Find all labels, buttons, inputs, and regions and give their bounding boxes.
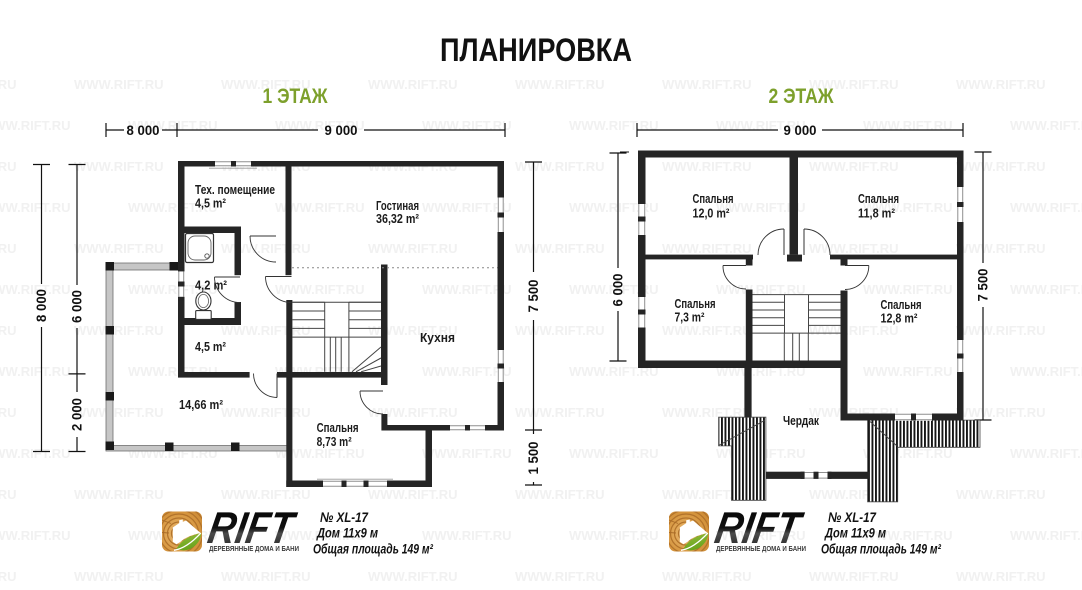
svg-text:WWW.RIFT.RU: WWW.RIFT.RU bbox=[1010, 118, 1082, 133]
svg-text:WWW.RIFT.RU: WWW.RIFT.RU bbox=[662, 323, 752, 338]
svg-text:WWW.RIFT.RU: WWW.RIFT.RU bbox=[662, 569, 752, 584]
svg-text:Спальня: Спальня bbox=[693, 191, 734, 206]
svg-text:WWW.RIFT.RU: WWW.RIFT.RU bbox=[809, 569, 899, 584]
svg-text:6 000: 6 000 bbox=[70, 290, 85, 323]
svg-text:WWW.RIFT.RU: WWW.RIFT.RU bbox=[0, 528, 71, 543]
svg-text:WWW.RIFT.RU: WWW.RIFT.RU bbox=[368, 569, 458, 584]
svg-text:WWW.RIFT.RU: WWW.RIFT.RU bbox=[74, 569, 164, 584]
svg-text:7,3 m²: 7,3 m² bbox=[675, 310, 706, 325]
svg-text:WWW.RIFT.RU: WWW.RIFT.RU bbox=[221, 405, 311, 420]
svg-text:2 000: 2 000 bbox=[70, 398, 85, 431]
svg-text:WWW.RIFT.RU: WWW.RIFT.RU bbox=[515, 405, 605, 420]
svg-text:Спальня: Спальня bbox=[317, 420, 359, 435]
svg-text:WWW.RIFT.RU: WWW.RIFT.RU bbox=[662, 241, 752, 256]
svg-text:14,66 m²: 14,66 m² bbox=[179, 397, 224, 412]
svg-text:WWW.RIFT.RU: WWW.RIFT.RU bbox=[0, 77, 17, 92]
svg-text:WWW.RIFT.RU: WWW.RIFT.RU bbox=[0, 405, 17, 420]
svg-text:WWW.RIFT.RU: WWW.RIFT.RU bbox=[221, 241, 311, 256]
svg-text:WWW.RIFT.RU: WWW.RIFT.RU bbox=[515, 569, 605, 584]
svg-text:WWW.RIFT.RU: WWW.RIFT.RU bbox=[515, 323, 605, 338]
svg-text:6 000: 6 000 bbox=[611, 274, 626, 307]
svg-text:WWW.RIFT.RU: WWW.RIFT.RU bbox=[515, 487, 605, 502]
svg-text:ПЛАНИРОВКА: ПЛАНИРОВКА bbox=[440, 32, 632, 68]
svg-text:WWW.RIFT.RU: WWW.RIFT.RU bbox=[221, 487, 311, 502]
svg-text:4,5 m²: 4,5 m² bbox=[195, 196, 227, 211]
svg-text:WWW.RIFT.RU: WWW.RIFT.RU bbox=[368, 77, 458, 92]
svg-text:WWW.RIFT.RU: WWW.RIFT.RU bbox=[956, 159, 1046, 174]
svg-text:WWW.RIFT.RU: WWW.RIFT.RU bbox=[662, 159, 752, 174]
svg-text:Кухня: Кухня bbox=[420, 330, 455, 345]
svg-text:36,32 m²: 36,32 m² bbox=[376, 211, 420, 226]
svg-text:7 500: 7 500 bbox=[976, 269, 991, 302]
svg-text:WWW.RIFT.RU: WWW.RIFT.RU bbox=[863, 364, 953, 379]
svg-text:WWW.RIFT.RU: WWW.RIFT.RU bbox=[422, 446, 512, 461]
svg-text:WWW.RIFT.RU: WWW.RIFT.RU bbox=[221, 569, 311, 584]
svg-text:8,73 m²: 8,73 m² bbox=[317, 434, 353, 449]
svg-text:WWW.RIFT.RU: WWW.RIFT.RU bbox=[809, 241, 899, 256]
svg-text:Общая площадь 149 м²: Общая площадь 149 м² bbox=[313, 541, 433, 557]
svg-text:Дом 11х9 м: Дом 11х9 м bbox=[316, 525, 378, 541]
svg-text:№ XL-17: № XL-17 bbox=[320, 509, 369, 525]
svg-text:WWW.RIFT.RU: WWW.RIFT.RU bbox=[515, 241, 605, 256]
svg-text:WWW.RIFT.RU: WWW.RIFT.RU bbox=[662, 77, 752, 92]
svg-text:WWW.RIFT.RU: WWW.RIFT.RU bbox=[1010, 282, 1082, 297]
svg-text:WWW.RIFT.RU: WWW.RIFT.RU bbox=[956, 77, 1046, 92]
svg-text:WWW.RIFT.RU: WWW.RIFT.RU bbox=[956, 569, 1046, 584]
svg-text:WWW.RIFT.RU: WWW.RIFT.RU bbox=[515, 159, 605, 174]
svg-text:Дом 11х9 м: Дом 11х9 м bbox=[824, 525, 886, 541]
svg-text:WWW.RIFT.RU: WWW.RIFT.RU bbox=[0, 118, 71, 133]
svg-text:WWW.RIFT.RU: WWW.RIFT.RU bbox=[1010, 364, 1082, 379]
svg-text:WWW.RIFT.RU: WWW.RIFT.RU bbox=[422, 528, 512, 543]
svg-text:ДЕРЕВЯННЫЕ ДОМА И БАНИ: ДЕРЕВЯННЫЕ ДОМА И БАНИ bbox=[716, 546, 806, 553]
svg-text:WWW.RIFT.RU: WWW.RIFT.RU bbox=[1010, 446, 1082, 461]
svg-text:WWW.RIFT.RU: WWW.RIFT.RU bbox=[863, 282, 953, 297]
svg-text:8 000: 8 000 bbox=[34, 289, 49, 322]
svg-text:1 500: 1 500 bbox=[526, 442, 541, 475]
svg-text:WWW.RIFT.RU: WWW.RIFT.RU bbox=[0, 446, 71, 461]
svg-text:1 ЭТАЖ: 1 ЭТАЖ bbox=[263, 85, 329, 108]
svg-text:WWW.RIFT.RU: WWW.RIFT.RU bbox=[956, 405, 1046, 420]
svg-text:WWW.RIFT.RU: WWW.RIFT.RU bbox=[74, 159, 164, 174]
svg-text:WWW.RIFT.RU: WWW.RIFT.RU bbox=[956, 241, 1046, 256]
svg-text:WWW.RIFT.RU: WWW.RIFT.RU bbox=[1010, 528, 1082, 543]
svg-text:8 000: 8 000 bbox=[127, 123, 160, 138]
svg-text:WWW.RIFT.RU: WWW.RIFT.RU bbox=[0, 200, 71, 215]
svg-text:WWW.RIFT.RU: WWW.RIFT.RU bbox=[956, 323, 1046, 338]
svg-text:WWW.RIFT.RU: WWW.RIFT.RU bbox=[221, 323, 311, 338]
svg-text:Общая площадь 149 м²: Общая площадь 149 м² bbox=[821, 541, 941, 557]
svg-text:11,8 m²: 11,8 m² bbox=[858, 206, 896, 221]
svg-text:WWW.RIFT.RU: WWW.RIFT.RU bbox=[275, 282, 365, 297]
svg-text:WWW.RIFT.RU: WWW.RIFT.RU bbox=[0, 569, 17, 584]
svg-text:2 ЭТАЖ: 2 ЭТАЖ bbox=[769, 85, 835, 108]
svg-text:WWW.RIFT.RU: WWW.RIFT.RU bbox=[1010, 200, 1082, 215]
svg-text:WWW.RIFT.RU: WWW.RIFT.RU bbox=[74, 241, 164, 256]
svg-text:Спальня: Спальня bbox=[858, 191, 899, 206]
svg-text:WWW.RIFT.RU: WWW.RIFT.RU bbox=[515, 77, 605, 92]
svg-text:WWW.RIFT.RU: WWW.RIFT.RU bbox=[956, 487, 1046, 502]
svg-text:9 000: 9 000 bbox=[784, 123, 817, 138]
svg-text:4,5 m²: 4,5 m² bbox=[195, 339, 227, 354]
svg-text:WWW.RIFT.RU: WWW.RIFT.RU bbox=[74, 77, 164, 92]
svg-text:WWW.RIFT.RU: WWW.RIFT.RU bbox=[0, 159, 17, 174]
svg-text:WWW.RIFT.RU: WWW.RIFT.RU bbox=[569, 446, 659, 461]
svg-text:WWW.RIFT.RU: WWW.RIFT.RU bbox=[0, 487, 17, 502]
svg-text:WWW.RIFT.RU: WWW.RIFT.RU bbox=[0, 323, 17, 338]
svg-text:WWW.RIFT.RU: WWW.RIFT.RU bbox=[74, 487, 164, 502]
svg-text:WWW.RIFT.RU: WWW.RIFT.RU bbox=[0, 241, 17, 256]
svg-text:12,8 m²: 12,8 m² bbox=[881, 311, 919, 326]
svg-text:12,0 m²: 12,0 m² bbox=[693, 206, 731, 221]
svg-text:WWW.RIFT.RU: WWW.RIFT.RU bbox=[809, 159, 899, 174]
svg-text:4,2 m²: 4,2 m² bbox=[195, 278, 228, 293]
svg-text:WWW.RIFT.RU: WWW.RIFT.RU bbox=[368, 241, 458, 256]
svg-text:WWW.RIFT.RU: WWW.RIFT.RU bbox=[422, 118, 512, 133]
svg-text:WWW.RIFT.RU: WWW.RIFT.RU bbox=[569, 528, 659, 543]
svg-text:WWW.RIFT.RU: WWW.RIFT.RU bbox=[863, 118, 953, 133]
svg-text:Чердак: Чердак bbox=[783, 413, 819, 428]
svg-text:№ XL-17: № XL-17 bbox=[828, 509, 877, 525]
svg-text:9 000: 9 000 bbox=[325, 123, 358, 138]
svg-text:WWW.RIFT.RU: WWW.RIFT.RU bbox=[74, 405, 164, 420]
svg-text:WWW.RIFT.RU: WWW.RIFT.RU bbox=[0, 364, 71, 379]
svg-text:WWW.RIFT.RU: WWW.RIFT.RU bbox=[569, 118, 659, 133]
svg-text:WWW.RIFT.RU: WWW.RIFT.RU bbox=[74, 323, 164, 338]
svg-text:WWW.RIFT.RU: WWW.RIFT.RU bbox=[368, 487, 458, 502]
svg-text:7 500: 7 500 bbox=[526, 280, 541, 313]
svg-text:ДЕРЕВЯННЫЕ ДОМА И БАНИ: ДЕРЕВЯННЫЕ ДОМА И БАНИ bbox=[209, 546, 299, 553]
